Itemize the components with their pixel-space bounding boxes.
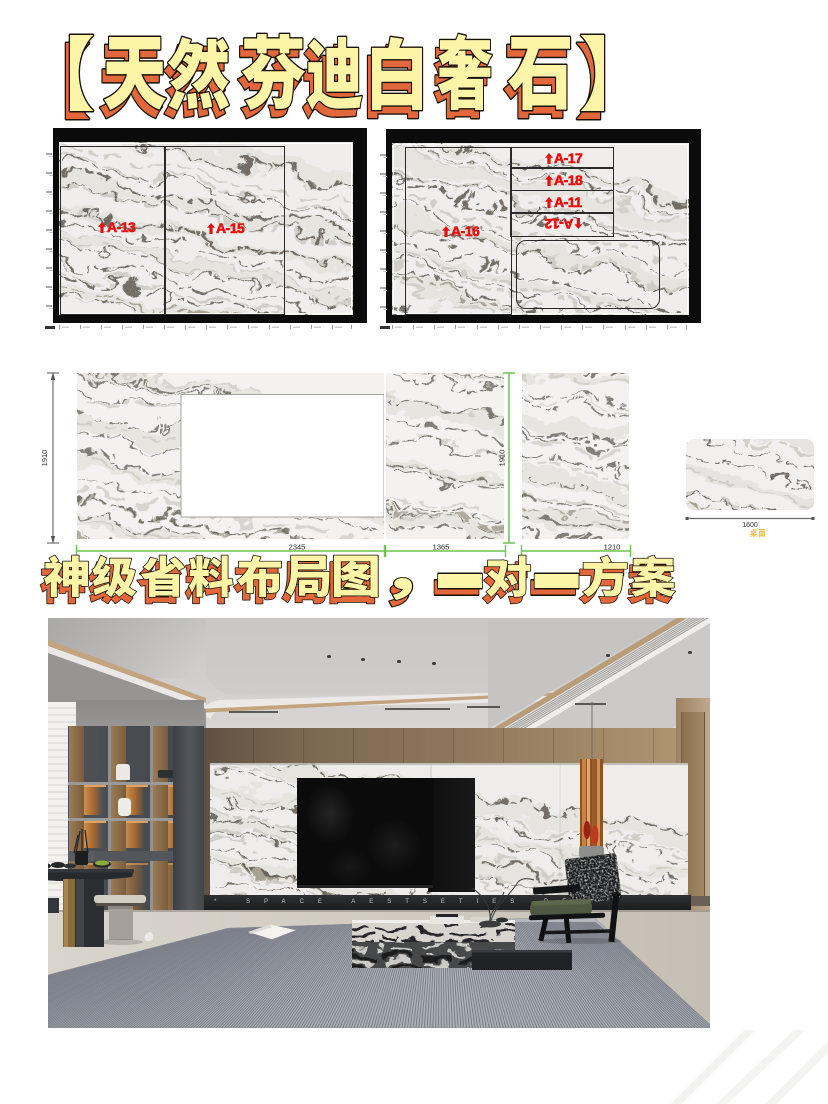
svg-text:1910: 1910 (498, 450, 507, 467)
svg-text:1910: 1910 (40, 450, 49, 467)
